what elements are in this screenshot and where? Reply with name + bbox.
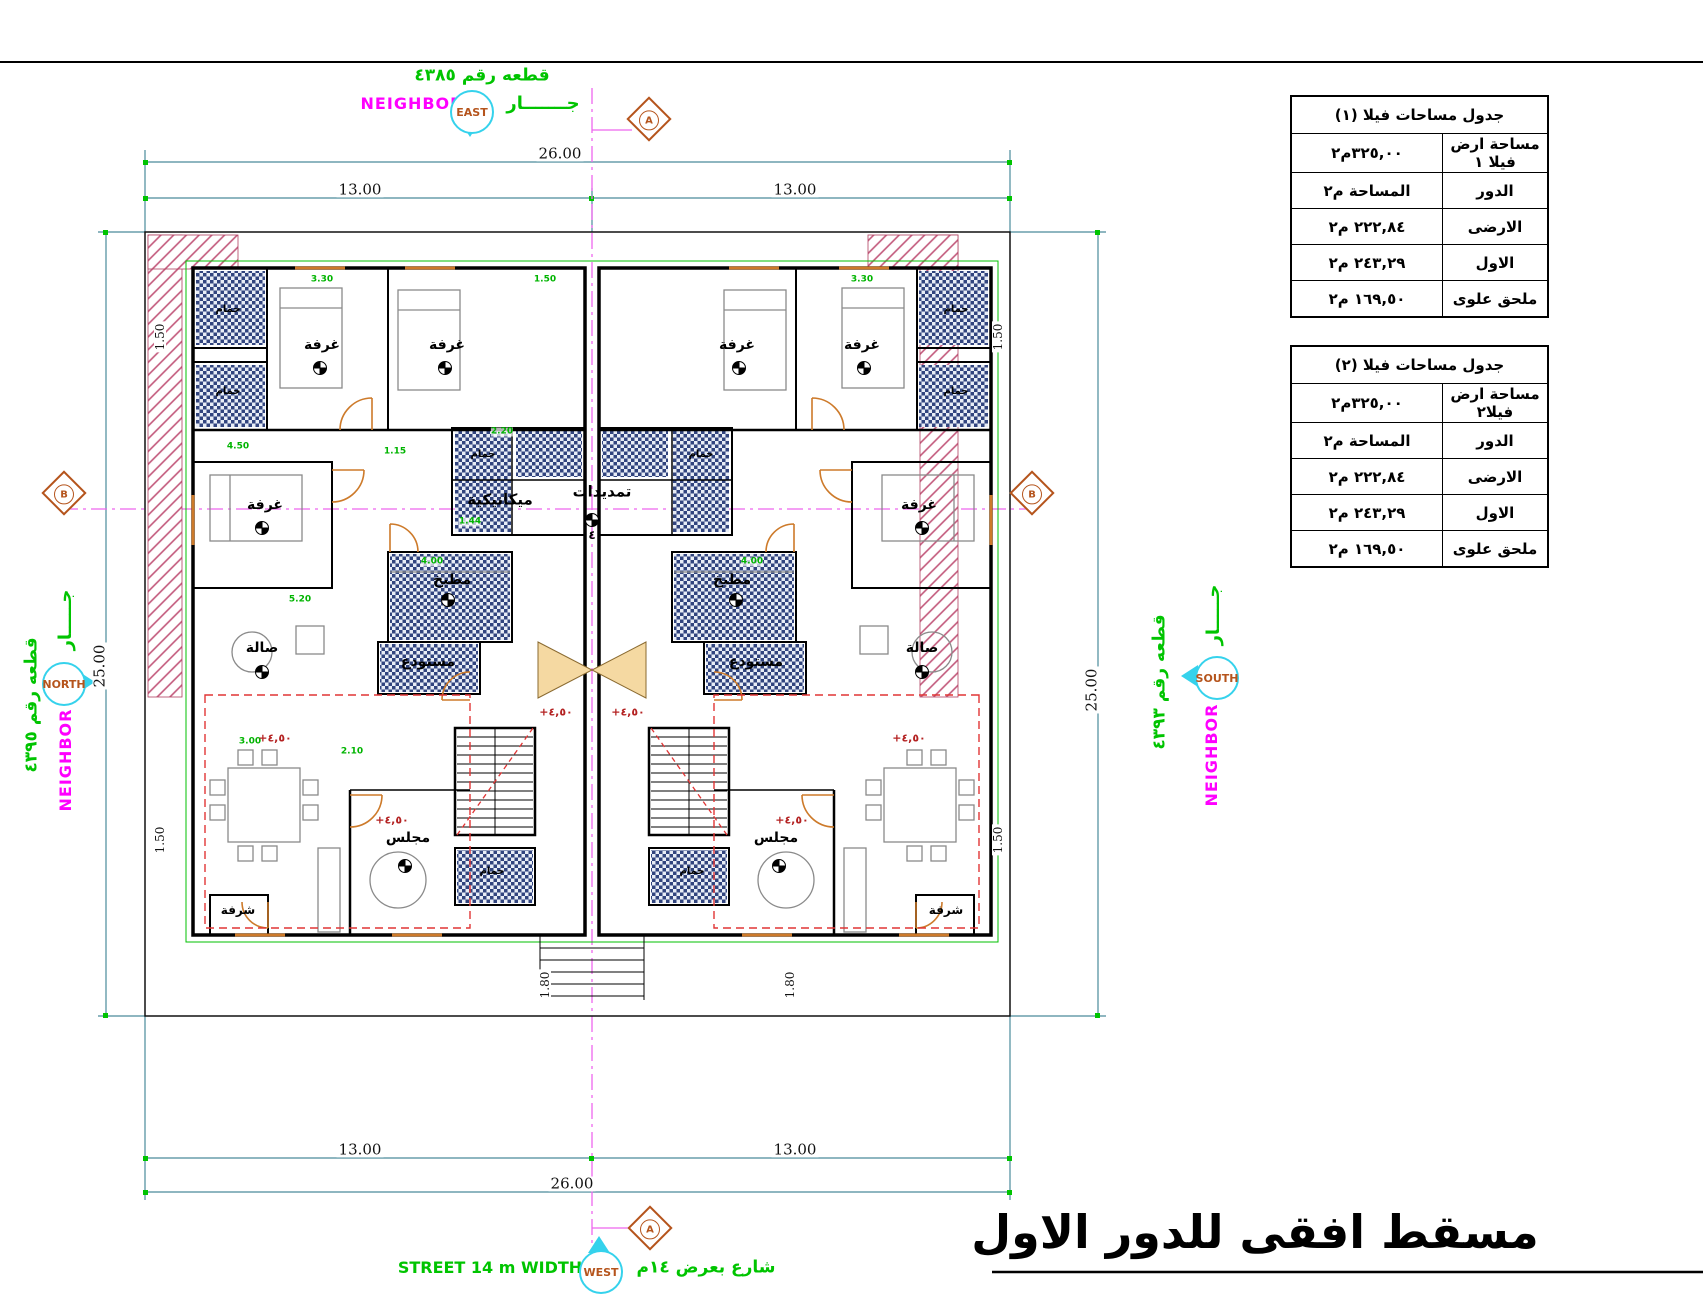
room-majlis: مجلس: [754, 831, 798, 845]
room-bedroom: غرفة: [247, 498, 283, 512]
dim-total-width-bottom: 26.00: [549, 1177, 596, 1192]
floor-plan-sheet: قطعه رقم ٤٣٨٥ NEIGHBOR EAST جـــــــار A…: [0, 0, 1703, 1312]
table-cell-label: ملحق علوى: [1443, 531, 1549, 568]
compass-pin-south: SOUTH: [1195, 656, 1239, 700]
level-mark: +٤,٥٠: [539, 707, 573, 718]
room-store: مستودع: [401, 655, 455, 669]
dim-setback-left-bottom: 1.50: [154, 825, 166, 856]
table-cell-label: الارضى: [1443, 459, 1549, 495]
inner-dim: 1.44: [459, 518, 481, 527]
room-store: مستودع: [729, 655, 783, 669]
room-bath: حمام: [471, 450, 496, 460]
room-bath: حمام: [216, 305, 241, 315]
dim-half-width-top-right: 13.00: [772, 183, 819, 198]
neighbor-label-top: NEIGHBOR: [361, 96, 464, 112]
plot-number-right: قطعه رقم ٤٣٩٣: [1152, 614, 1169, 749]
area-table-villa-1: جدول مساحات فيلا (١) مساحة ارض فيلا ١ ٣٢…: [1290, 95, 1549, 318]
compass-north-label: NORTH: [42, 662, 86, 706]
room-plumbing: تمديدات: [573, 485, 632, 500]
table-cell-label: الدور: [1443, 173, 1549, 209]
plot-number-left: قطعه رقم ٤٣٩٥: [24, 637, 41, 772]
jar-label-right: جـــــار: [1205, 585, 1223, 646]
room-bath: حمام: [944, 387, 969, 397]
table-cell-label: ملحق علوى: [1443, 281, 1549, 318]
room-kitchen: مطبخ: [433, 573, 471, 587]
inner-dim: 2.20: [491, 428, 513, 437]
dim-front-setback-left: 1.80: [539, 970, 551, 1001]
table-cell-label: الدور: [1443, 423, 1549, 459]
inner-dim: 4.00: [421, 558, 443, 567]
table-cell-label: مساحة ارض فيلا٢: [1443, 384, 1549, 423]
inner-dim: 3.30: [311, 276, 333, 285]
section-marker-a-top-letter: A: [639, 110, 659, 130]
street-label-ar: شارع بعرض ١٤م: [637, 1260, 776, 1277]
inner-dim: 4.50: [227, 443, 249, 452]
room-bedroom: غرفة: [304, 338, 340, 352]
table-cell-value: ٢٢٢,٨٤ م٢: [1291, 209, 1443, 245]
inner-dim: 4.00: [741, 558, 763, 567]
jar-label-left: جـــــار: [57, 590, 75, 651]
room-majlis: مجلس: [386, 831, 430, 845]
room-hall: صالة: [246, 641, 279, 655]
room-terrace: شرفة: [221, 904, 255, 916]
room-mechanical: ميكانيكية: [467, 493, 532, 508]
table-cell-label: مساحة ارض فيلا ١: [1443, 134, 1549, 173]
area-table-2-title: جدول مساحات فيلا (٢): [1291, 346, 1548, 384]
inner-dim: 1.50: [534, 276, 556, 285]
level-mark: +٤,٥٠: [775, 815, 809, 826]
section-marker-b-left-letter: B: [54, 484, 74, 504]
table-cell-value: المساحة م٢: [1291, 173, 1443, 209]
area-table-1-title: جدول مساحات فيلا (١): [1291, 96, 1548, 134]
dim-total-height-right: 25.00: [1085, 667, 1100, 714]
table-cell-label: الاول: [1443, 245, 1549, 281]
room-bath: حمام: [480, 867, 505, 877]
drawing-title: مسقط افقى للدور الاول: [971, 1209, 1538, 1255]
inner-dim: 1.15: [384, 448, 406, 457]
inner-dim: 2.10: [341, 748, 363, 757]
dim-half-width-bottom-right: 13.00: [772, 1143, 819, 1158]
dim-front-setback-right: 1.80: [784, 970, 796, 1001]
table-cell-value: ١٦٩,٥٠ م٢: [1291, 531, 1443, 568]
table-cell-value: ٣٢٥,٠٠م٢: [1291, 384, 1443, 423]
level-mark: +٤,٥٠: [258, 733, 292, 744]
dim-half-width-bottom-left: 13.00: [337, 1143, 384, 1158]
room-kitchen: مطبخ: [713, 573, 751, 587]
table-cell-label: الارضى: [1443, 209, 1549, 245]
room-terrace: شرفة: [929, 904, 963, 916]
street-label-en: STREET 14 m WIDTH: [398, 1260, 582, 1276]
table-cell-label: الاول: [1443, 495, 1549, 531]
table-cell-value: ١٦٩,٥٠ م٢: [1291, 281, 1443, 318]
neighbor-label-right: NEIGHBOR: [1204, 704, 1220, 807]
compass-pin-east: EAST: [450, 90, 494, 134]
room-bath: حمام: [216, 387, 241, 397]
dim-total-width-top: 26.00: [537, 147, 584, 162]
table-cell-value: ٢٢٢,٨٤ م٢: [1291, 459, 1443, 495]
compass-pin-north: NORTH: [42, 662, 86, 706]
jar-label-top: جـــــــار: [506, 95, 579, 113]
neighbor-label-left: NEIGHBOR: [58, 709, 74, 812]
level-mark: +٤,٥٠: [892, 733, 926, 744]
compass-west-label: WEST: [579, 1250, 623, 1294]
dim-setback-right-bottom: 1.50: [992, 825, 1004, 856]
room-bath: حمام: [689, 450, 714, 460]
table-cell-value: ٢٤٣,٢٩ م٢: [1291, 245, 1443, 281]
compass-east-label: EAST: [450, 90, 494, 134]
room-bath: حمام: [944, 305, 969, 315]
inner-dim: 3.30: [851, 276, 873, 285]
room-bath: حمام: [680, 867, 705, 877]
area-table-villa-2: جدول مساحات فيلا (٢) مساحة ارض فيلا٢ ٣٢٥…: [1290, 345, 1549, 568]
dim-setback-right-top: 1.50: [992, 322, 1004, 353]
room-hall: صالة: [906, 641, 939, 655]
room-bedroom: غرفة: [429, 338, 465, 352]
level-mark: +٤,٥٠: [611, 707, 645, 718]
dim-setback-left-top: 1.50: [154, 322, 166, 353]
plot-number-top: قطعه رقم ٤٣٨٥: [414, 68, 549, 85]
shaft-number: ٤: [588, 529, 595, 541]
room-bedroom: غرفة: [719, 338, 755, 352]
table-cell-value: المساحة م٢: [1291, 423, 1443, 459]
room-bedroom: غرفة: [844, 338, 880, 352]
dim-half-width-top-left: 13.00: [337, 183, 384, 198]
compass-south-label: SOUTH: [1195, 656, 1239, 700]
level-mark: +٤,٥٠: [375, 815, 409, 826]
section-marker-b-right-letter: B: [1022, 484, 1042, 504]
inner-dim: 5.20: [289, 596, 311, 605]
room-bedroom: غرفة: [901, 498, 937, 512]
table-cell-value: ٢٤٣,٢٩ م٢: [1291, 495, 1443, 531]
table-cell-value: ٣٢٥,٠٠م٢: [1291, 134, 1443, 173]
dim-total-height-left: 25.00: [93, 643, 108, 690]
section-marker-a-bottom-letter: A: [640, 1219, 660, 1239]
compass-pin-west: WEST: [579, 1250, 623, 1294]
